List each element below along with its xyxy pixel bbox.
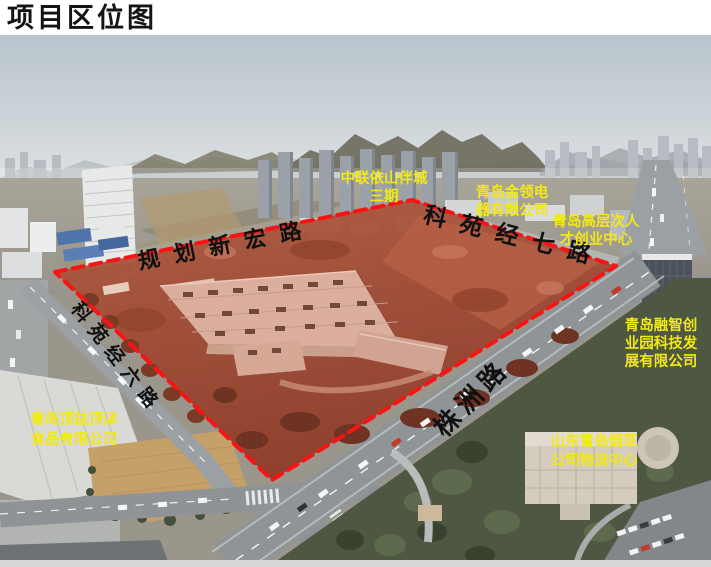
page-title: 项目区位图 <box>0 0 711 33</box>
poi-label-dingyi-line1: 青岛顶益顶津 <box>31 410 118 428</box>
photo-bottom-edge <box>0 560 711 567</box>
poi-label-yancao-line2: 公司物流中心 <box>551 451 638 469</box>
poi-label-zhonglian-line2: 三期 <box>370 187 399 205</box>
poi-label-dingyi-line2: 食品有限公司 <box>31 430 118 448</box>
poi-label-yancao-line1: 山东青岛烟草 <box>551 432 638 450</box>
poi-label-gaocengci-line1: 青岛高层次人 <box>553 212 640 230</box>
poi-label-jinling-line1: 青岛金领电 <box>476 183 549 201</box>
poi-label-jinling-line2: 器有限公司 <box>475 201 549 219</box>
project-location-figure: 项目区位图 <box>0 0 711 567</box>
poi-label-rongzhi-line3: 展有限公司 <box>625 352 698 370</box>
poi-label-rongzhi-line1: 青岛融智创 <box>625 316 698 334</box>
poi-label-zhonglian-line1: 中联依山伴城 <box>341 169 428 187</box>
title-bar: 项目区位图 <box>0 0 711 35</box>
poi-label-rongzhi-line2: 业园科技发 <box>625 334 698 352</box>
poi-label-gaocengci-line2: 才创业中心 <box>560 230 633 248</box>
aerial-photo: 规划新宏路 科苑经七路 科苑经六路 株洲路 中联依山伴城 三期 青岛金领电 器有… <box>0 35 711 567</box>
poi-label-rongzhi: 青岛融智创 业园科技发 展有限公司 <box>625 316 698 370</box>
